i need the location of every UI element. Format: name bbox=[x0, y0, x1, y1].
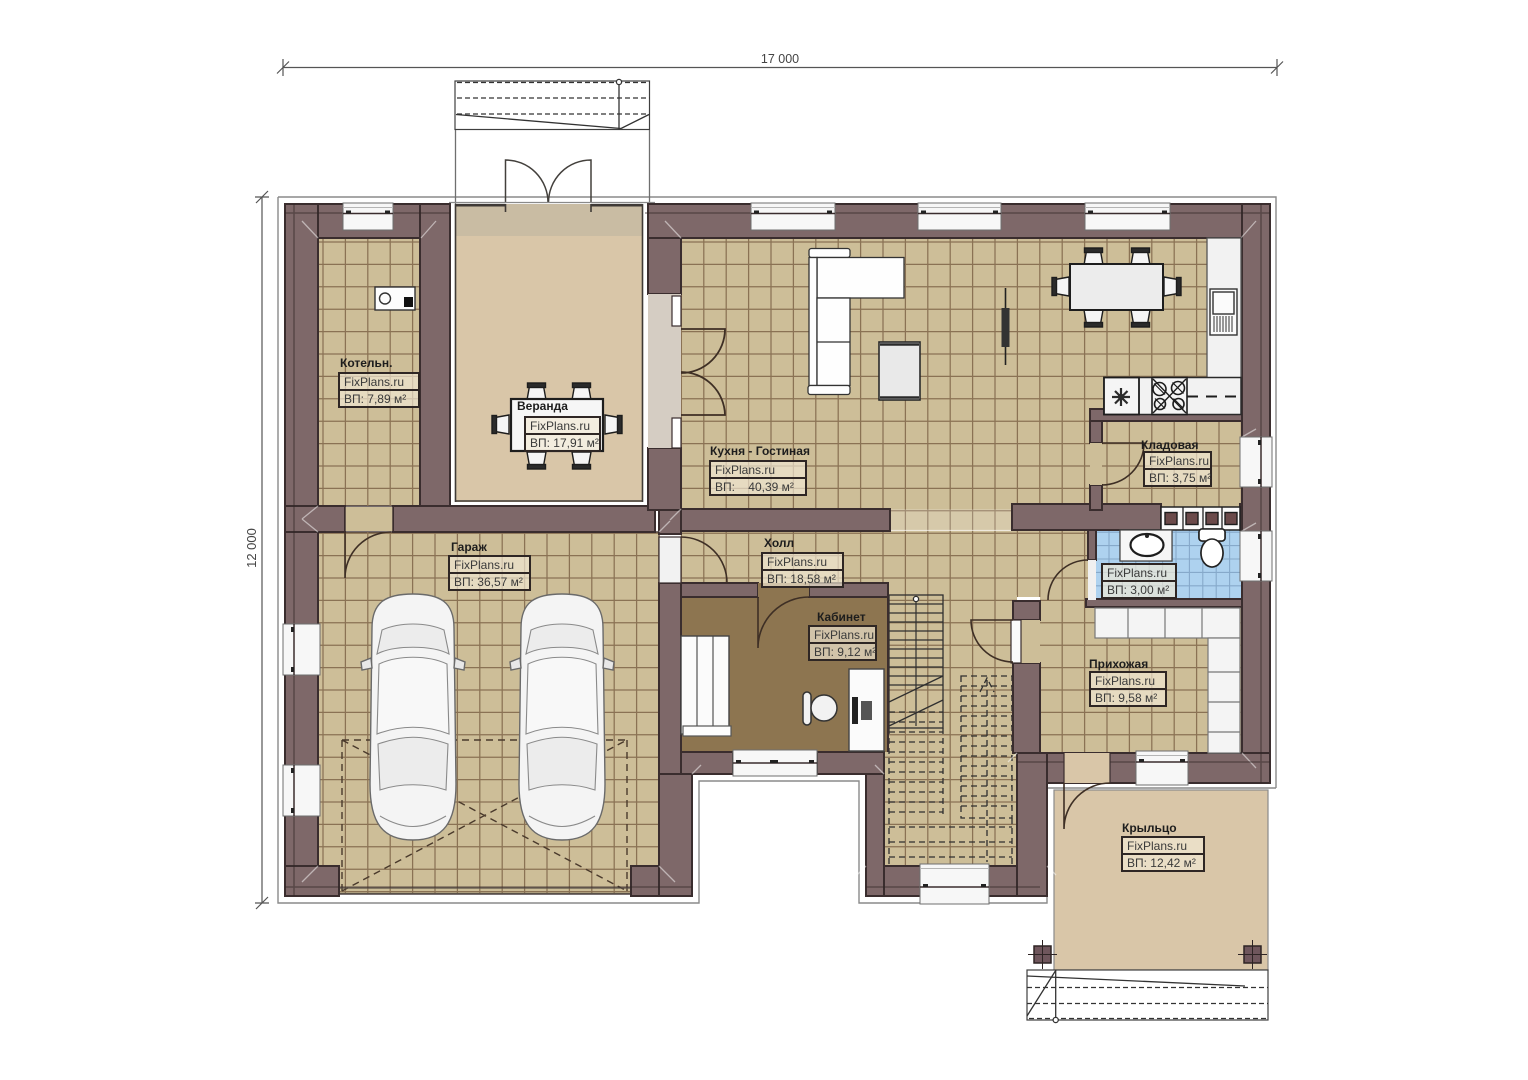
svg-text:ВП: 18,58 м²: ВП: 18,58 м² bbox=[767, 572, 836, 586]
svg-text:Холл: Холл bbox=[764, 536, 794, 550]
svg-text:17 000: 17 000 bbox=[761, 52, 799, 66]
svg-text:FixPlans.ru: FixPlans.ru bbox=[530, 419, 590, 433]
svg-text:ВП: 9,58 м²: ВП: 9,58 м² bbox=[1095, 691, 1157, 705]
svg-text:Кабинет: Кабинет bbox=[817, 610, 866, 624]
svg-text:FixPlans.ru: FixPlans.ru bbox=[344, 375, 404, 389]
svg-text:FixPlans.ru: FixPlans.ru bbox=[1149, 454, 1209, 468]
svg-text:Веранда: Веранда bbox=[517, 399, 568, 413]
svg-text:ВП: 3,75 м²: ВП: 3,75 м² bbox=[1149, 471, 1211, 485]
svg-text:Прихожая: Прихожая bbox=[1089, 657, 1148, 671]
svg-text:FixPlans.ru: FixPlans.ru bbox=[1095, 674, 1155, 688]
svg-text:Кладовая: Кладовая bbox=[1141, 438, 1198, 452]
svg-text:FixPlans.ru: FixPlans.ru bbox=[715, 463, 775, 477]
svg-text:FixPlans.ru: FixPlans.ru bbox=[454, 558, 514, 572]
svg-text:Гараж: Гараж bbox=[451, 540, 487, 554]
svg-text:ВП: 3,00 м²: ВП: 3,00 м² bbox=[1107, 583, 1169, 597]
svg-text:ВП: 17,91 м²: ВП: 17,91 м² bbox=[530, 436, 599, 450]
svg-text:ВП: 7,89 м²: ВП: 7,89 м² bbox=[344, 392, 406, 406]
svg-text:FixPlans.ru: FixPlans.ru bbox=[767, 555, 827, 569]
svg-text:FixPlans.ru: FixPlans.ru bbox=[1127, 839, 1187, 853]
svg-text:FixPlans.ru: FixPlans.ru bbox=[814, 628, 874, 642]
svg-text:ВП: 40,39 м²: ВП: 40,39 м² bbox=[715, 480, 794, 494]
svg-text:FixPlans.ru: FixPlans.ru bbox=[1107, 566, 1167, 580]
svg-text:Крыльцо: Крыльцо bbox=[1122, 821, 1177, 835]
svg-text:ВП: 36,57 м²: ВП: 36,57 м² bbox=[454, 575, 523, 589]
svg-text:ВП: 9,12 м²: ВП: 9,12 м² bbox=[814, 645, 876, 659]
svg-text:Кухня - Гостиная: Кухня - Гостиная bbox=[710, 444, 810, 458]
svg-text:Котельн.: Котельн. bbox=[340, 356, 393, 370]
svg-text:ВП: 12,42 м²: ВП: 12,42 м² bbox=[1127, 856, 1196, 870]
svg-text:12 000: 12 000 bbox=[244, 528, 259, 568]
